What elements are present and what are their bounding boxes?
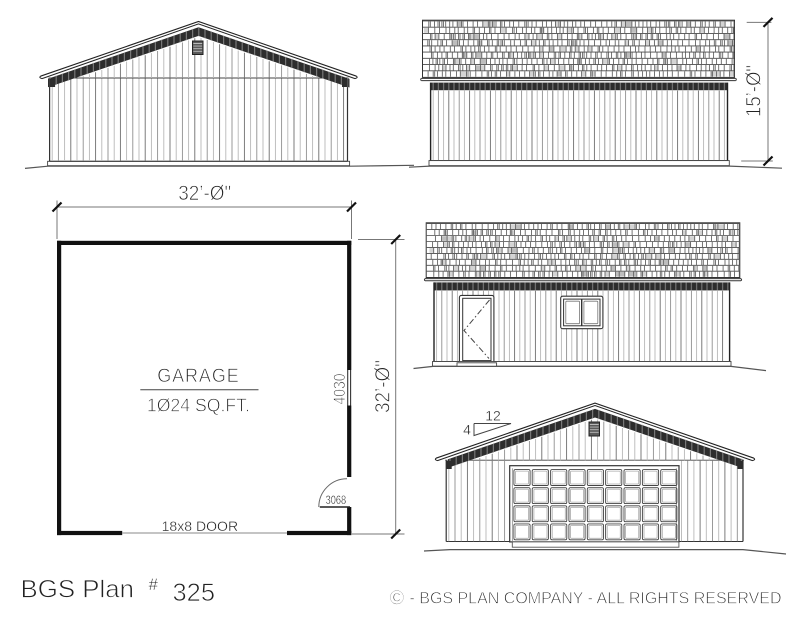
svg-text:325: 325	[173, 579, 216, 607]
svg-text:18x8 DOOR: 18x8 DOOR	[162, 518, 239, 534]
svg-text:#: #	[149, 575, 159, 594]
svg-text:GARAGE: GARAGE	[157, 366, 240, 387]
svg-text:1Ø24 SQ.FT.: 1Ø24 SQ.FT.	[147, 395, 250, 415]
svg-text:12: 12	[485, 408, 501, 424]
svg-text:- BGS PLAN COMPANY - ALL RIGHT: - BGS PLAN COMPANY - ALL RIGHTS RESERVED	[410, 590, 782, 608]
svg-text:4: 4	[463, 422, 471, 438]
svg-text:32’-Ø": 32’-Ø"	[178, 182, 231, 205]
svg-text:32’-Ø": 32’-Ø"	[372, 360, 395, 413]
svg-text:BGS Plan: BGS Plan	[21, 576, 135, 604]
svg-text:4030: 4030	[330, 374, 349, 405]
svg-text:3068: 3068	[326, 493, 347, 507]
svg-text:15’-Ø": 15’-Ø"	[743, 65, 766, 117]
svg-text:©: ©	[390, 588, 405, 610]
